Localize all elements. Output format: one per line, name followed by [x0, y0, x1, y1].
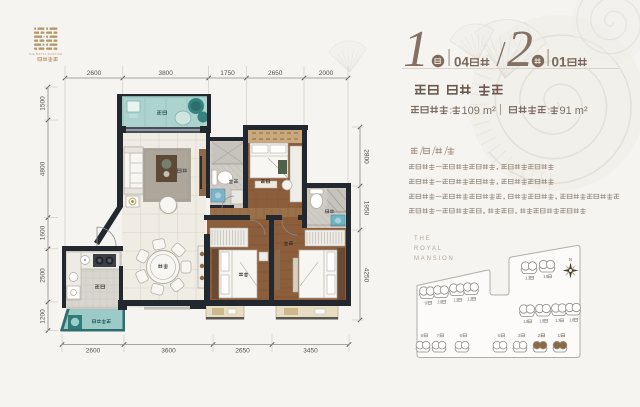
svg-text:8: 8 [420, 333, 423, 339]
svg-text:3: 3 [517, 333, 520, 339]
svg-text:4250: 4250 [362, 268, 369, 283]
svg-text:2: 2 [537, 333, 540, 339]
svg-text:04: 04 [454, 55, 470, 70]
svg-text:2600: 2600 [87, 70, 102, 77]
svg-text:109 m²: 109 m² [462, 105, 497, 117]
svg-text:ROYAL: ROYAL [414, 246, 443, 252]
svg-text:1200: 1200 [40, 309, 47, 324]
svg-text:4800: 4800 [40, 161, 47, 176]
svg-text:2650: 2650 [268, 70, 283, 77]
svg-text:2000: 2000 [319, 70, 334, 77]
svg-text:6: 6 [459, 333, 462, 339]
svg-text:2800: 2800 [362, 149, 369, 164]
svg-text:3600: 3600 [161, 348, 176, 355]
svg-text:2600: 2600 [86, 348, 101, 355]
svg-text:1750: 1750 [220, 70, 235, 77]
svg-text:2650: 2650 [235, 348, 250, 355]
svg-text:3450: 3450 [303, 348, 318, 355]
svg-text:7: 7 [436, 333, 439, 339]
svg-text:1: 1 [403, 21, 429, 78]
svg-text::: : [450, 106, 453, 117]
svg-text:1500: 1500 [40, 96, 47, 111]
svg-text::: : [548, 106, 551, 117]
svg-text:5: 5 [497, 333, 500, 339]
svg-text:2: 2 [507, 21, 533, 78]
svg-text:N: N [569, 257, 572, 262]
svg-text:3800: 3800 [158, 70, 173, 77]
svg-text:9: 9 [424, 301, 427, 307]
svg-text:THE: THE [414, 236, 431, 242]
svg-text:1950: 1950 [362, 201, 369, 216]
svg-text:MANSION: MANSION [414, 256, 455, 262]
svg-text:1: 1 [557, 333, 560, 339]
svg-text:1600: 1600 [40, 225, 47, 240]
svg-text:THE ROYAL MANSION: THE ROYAL MANSION [28, 52, 62, 56]
svg-text:2500: 2500 [40, 268, 47, 283]
svg-text:91 m²: 91 m² [560, 105, 588, 117]
svg-text:01: 01 [552, 55, 568, 70]
